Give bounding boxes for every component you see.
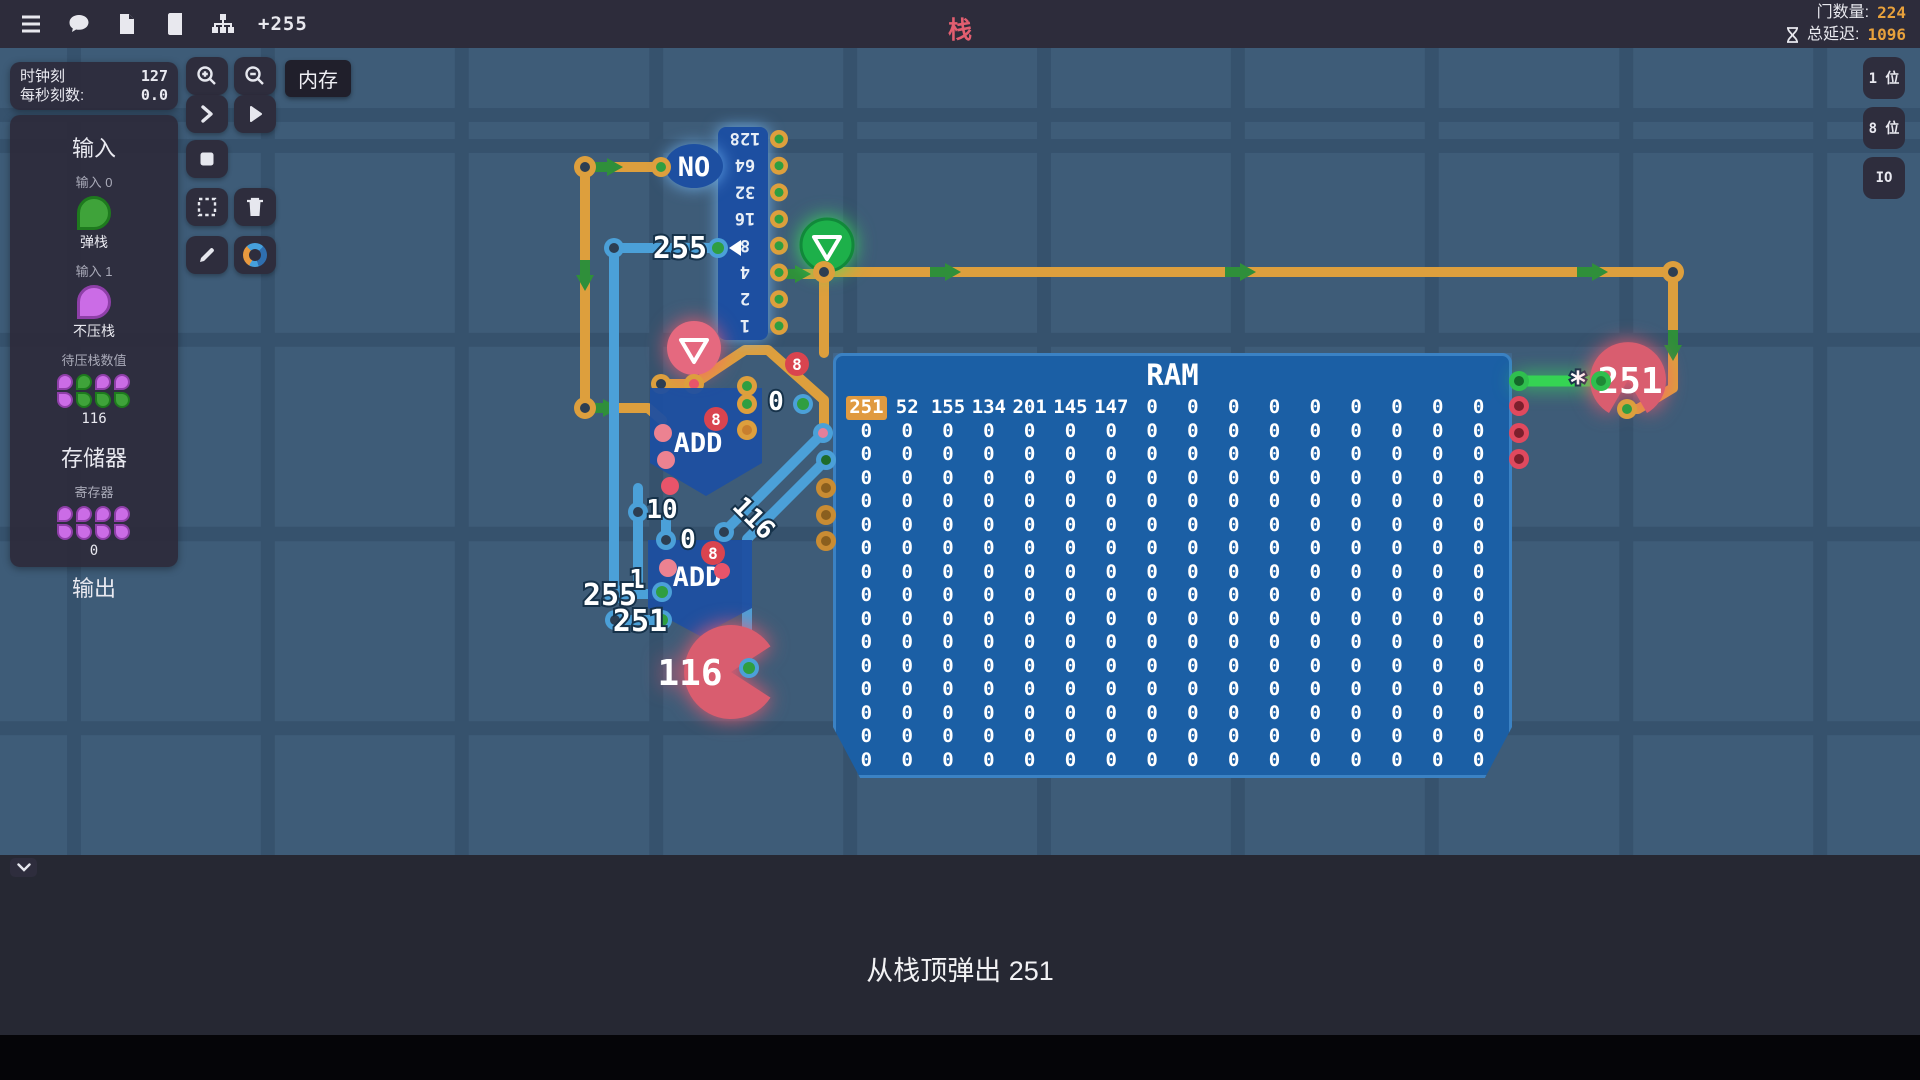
zoom-in-icon — [195, 64, 219, 88]
bit-drop[interactable] — [95, 392, 111, 408]
bit-drop[interactable] — [95, 374, 111, 390]
pop-indicator-off[interactable] — [667, 321, 721, 375]
splitter-bit-label: 16 — [735, 208, 755, 228]
flow-arrow-icon — [1577, 263, 1608, 281]
bit-drop — [76, 524, 92, 540]
flow-arrow-icon — [930, 263, 961, 281]
level-title: 栈 — [0, 10, 1920, 45]
delay-label: 总延迟: — [1807, 24, 1859, 46]
hourglass-icon — [1785, 27, 1799, 43]
io-button[interactable]: IO — [1863, 157, 1905, 199]
pencil-icon — [197, 245, 217, 265]
bit-drop[interactable] — [114, 374, 130, 390]
circuit-layer: * 1286432168421 NO 255 — [0, 48, 1920, 855]
zoom-out-icon — [243, 64, 267, 88]
bit-drop — [57, 506, 73, 522]
io-panel: 输入 输入 0 弹栈 输入 1 不压栈 待压栈数值 116 存储器 寄存器 0 … — [10, 115, 178, 567]
bit-drop — [95, 524, 111, 540]
gate-count-label: 门数量: — [1817, 2, 1869, 24]
delay-value: 1096 — [1867, 24, 1906, 46]
input1-name: 不压栈 — [10, 321, 178, 341]
input0-bit[interactable] — [77, 196, 111, 230]
splitter-bit-label: 2 — [740, 288, 750, 308]
bit-drop[interactable] — [57, 374, 73, 390]
color-wheel-icon — [243, 243, 267, 267]
svg-text:8: 8 — [711, 410, 721, 429]
wire-asterisk-label: * — [1569, 366, 1587, 401]
splitter-bit-label: 32 — [735, 181, 755, 201]
memory-tag[interactable]: 内存 — [285, 60, 351, 97]
rate-label: 每秒刻数: — [20, 86, 84, 105]
step-icon — [196, 103, 218, 125]
label-251: 251 — [613, 604, 667, 639]
no-gate-component[interactable]: NO — [665, 144, 723, 188]
register-label: 寄存器 — [10, 482, 178, 501]
rate-value: 0.0 — [141, 86, 168, 105]
add1-input-pin[interactable] — [661, 477, 679, 495]
bit-drop[interactable] — [76, 392, 92, 408]
output-header: 输出 — [10, 571, 178, 603]
splitter-bit-label: 4 — [740, 262, 750, 282]
bit-width-1-button[interactable]: 1 位 — [1863, 57, 1905, 99]
input0-label: 输入 0 — [10, 172, 178, 191]
status-message: 从栈顶弹出 251 — [0, 949, 1920, 988]
bit-drop — [95, 506, 111, 522]
bit-drop[interactable] — [76, 374, 92, 390]
label-0b: 0 — [680, 525, 696, 555]
zoom-out-button[interactable] — [234, 57, 276, 95]
stop-icon — [197, 149, 217, 169]
bit-drop — [57, 524, 73, 540]
bottom-panel: 从栈顶弹出 251 — [0, 855, 1920, 1035]
bottom-black-bar — [0, 1035, 1920, 1080]
flow-arrow-icon — [1225, 263, 1256, 281]
input1-label: 输入 1 — [10, 261, 178, 280]
svg-text:8: 8 — [708, 544, 718, 563]
stop-button[interactable] — [186, 140, 228, 178]
input1-bit[interactable] — [77, 285, 111, 319]
step-button[interactable] — [186, 95, 228, 133]
bit-drop[interactable] — [57, 392, 73, 408]
input-header: 输入 — [10, 131, 178, 163]
palette-button[interactable] — [234, 236, 276, 274]
push-value-label: 待压栈数值 — [10, 350, 178, 369]
gate-count-value: 224 — [1877, 2, 1906, 24]
splitter-bit-label: 128 — [730, 128, 761, 148]
top-bar: +255 栈 门数量: 224 总延迟: 1096 — [0, 0, 1920, 48]
register-bits — [10, 506, 178, 540]
push-value: 116 — [10, 411, 178, 427]
play-button[interactable] — [234, 95, 276, 133]
select-icon — [196, 196, 218, 218]
no-gate-label: NO — [678, 152, 711, 183]
flow-arrow-icon — [1664, 330, 1682, 361]
input0-name: 弹栈 — [10, 232, 178, 252]
label-10: 10 — [646, 495, 677, 525]
splitter-bit-label: 1 — [740, 315, 750, 335]
tick-label: 时钟刻 — [20, 67, 65, 86]
svg-text:8: 8 — [792, 355, 802, 374]
add2-pin[interactable] — [714, 563, 730, 579]
add1-input-pin[interactable] — [654, 424, 672, 442]
clock-panel: 时钟刻 127 每秒刻数: 0.0 — [10, 62, 178, 110]
select-button[interactable] — [186, 188, 228, 226]
bit-width-8-button[interactable]: 8 位 — [1863, 107, 1905, 149]
zoom-in-button[interactable] — [186, 57, 228, 95]
bit-drop — [114, 506, 130, 522]
add-component-1[interactable]: ADD 8 — [650, 376, 762, 496]
delete-button[interactable] — [234, 188, 276, 226]
flow-arrow-icon — [576, 260, 594, 291]
tick-value: 127 — [141, 67, 168, 86]
add2-input-pin[interactable] — [659, 559, 677, 577]
byte-input-value-label: 255 — [653, 231, 707, 266]
add1-input-pin[interactable] — [657, 451, 675, 469]
address-value-text: 116 — [657, 653, 722, 694]
add2-label: ADD — [673, 562, 722, 593]
play-icon — [244, 103, 266, 125]
circuit-canvas[interactable]: RAM 251521551342011451470000000000000000… — [0, 48, 1920, 855]
chevron-down-icon — [17, 863, 31, 872]
bit-drop[interactable] — [114, 392, 130, 408]
collapse-panel-button[interactable] — [10, 858, 37, 877]
label-116-diag: 116 — [726, 491, 780, 545]
push-value-bits[interactable] — [10, 374, 178, 408]
trash-icon — [245, 196, 265, 218]
label-0: 0 — [768, 387, 784, 417]
add1-label: ADD — [674, 428, 723, 459]
memory-header: 存储器 — [10, 441, 178, 473]
bit-drop — [76, 506, 92, 522]
flow-arrow-icon — [592, 158, 623, 176]
ram-right-pins[interactable] — [1509, 396, 1529, 469]
splitter-bit-label: 64 — [735, 155, 755, 175]
bit-drop — [114, 524, 130, 540]
register-value: 0 — [10, 543, 178, 559]
splitter-bit-label: 8 — [740, 235, 750, 255]
edit-button[interactable] — [186, 236, 228, 274]
